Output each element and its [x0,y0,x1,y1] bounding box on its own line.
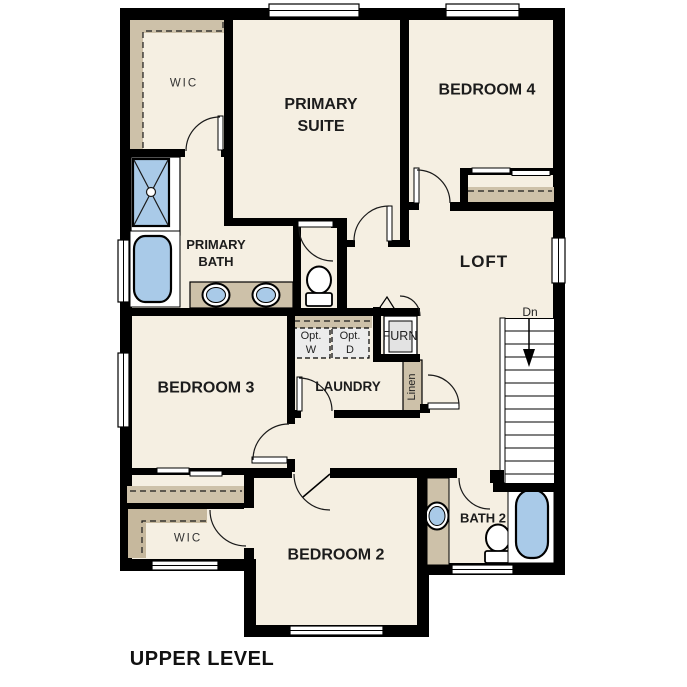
bedroom4-closet-shelf [466,187,554,203]
window [446,4,519,17]
window [118,240,129,302]
bathtub [516,490,548,558]
window [152,561,218,570]
label-loft: LOFT [460,251,508,273]
label-bath-2: BATH 2 [460,511,506,528]
bedroom3-closet-shelf [127,486,244,503]
toilet-icon [307,267,331,294]
floor-plan: WIC PRIMARY SUITE BEDROOM 4 PRIMARY BATH… [0,0,687,687]
label-stairs-dn: Dn [522,305,537,321]
label-bedroom2-wic: WIC [174,532,202,547]
label-furnace: FURN [383,328,418,344]
label-opt-washer: Opt. W [301,329,322,357]
label-linen: Linen [405,374,419,401]
window [552,238,565,283]
label-bedroom-4: BEDROOM 4 [439,81,536,102]
window [290,626,383,635]
toilet-icon [486,525,510,552]
label-bedroom-2: BEDROOM 2 [288,546,385,567]
window [118,353,129,427]
label-primary-bath: PRIMARY BATH [186,236,245,270]
window [452,565,513,574]
bathtub [134,236,171,302]
label-bedroom-3: BEDROOM 3 [158,379,255,400]
stair-railing [500,318,505,483]
stairs-down [500,318,554,483]
label-primary-suite: PRIMARY SUITE [284,94,357,138]
plan-title: UPPER LEVEL [130,646,274,672]
label-laundry: LAUNDRY [315,378,381,396]
label-primary-wic: WIC [170,77,198,92]
shower-drain-icon [147,188,156,197]
window [269,4,359,17]
label-opt-dryer: Opt. D [340,329,361,357]
